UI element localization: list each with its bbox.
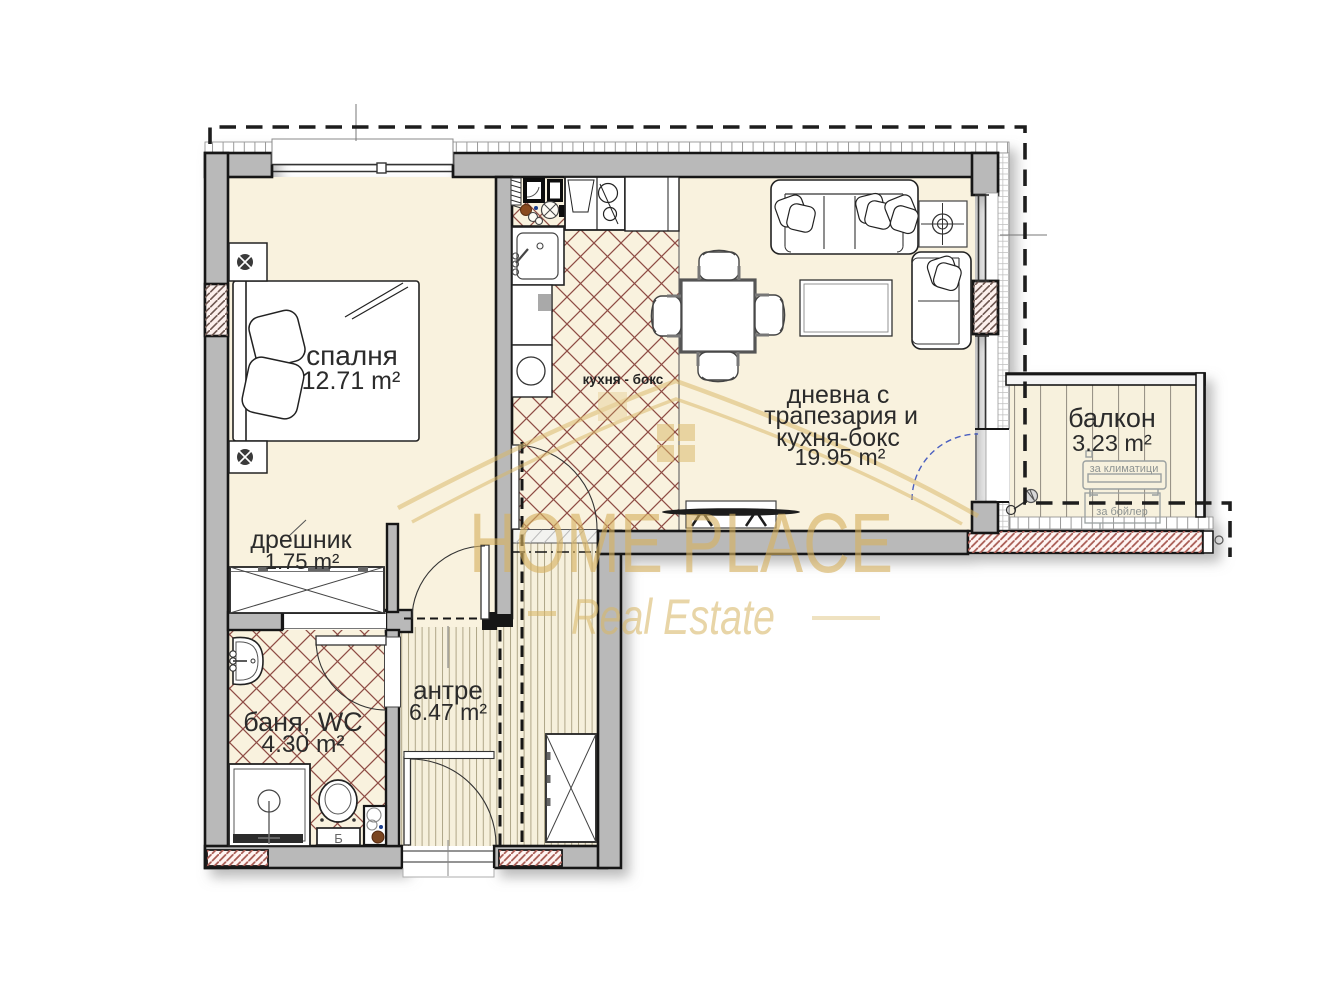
svg-text:за климатици: за климатици <box>1090 463 1159 475</box>
svg-text:балкон: балкон <box>1068 403 1156 433</box>
svg-text:12.71 m²: 12.71 m² <box>302 367 401 395</box>
svg-text:4.30 m²: 4.30 m² <box>261 731 344 758</box>
svg-text:6.47 m²: 6.47 m² <box>409 699 487 725</box>
svg-text:19.95 m²: 19.95 m² <box>795 444 886 470</box>
svg-text:3.23 m²: 3.23 m² <box>1072 430 1152 456</box>
svg-text:1.75 m²: 1.75 m² <box>265 549 340 574</box>
svg-text:HOME PLACE: HOME PLACE <box>469 496 893 590</box>
svg-text:Б: Б <box>334 831 343 846</box>
svg-text:Real Estate: Real Estate <box>571 589 775 645</box>
svg-text:кухня - бокс: кухня - бокс <box>583 372 664 387</box>
svg-text:за бойлер: за бойлер <box>1096 506 1147 518</box>
